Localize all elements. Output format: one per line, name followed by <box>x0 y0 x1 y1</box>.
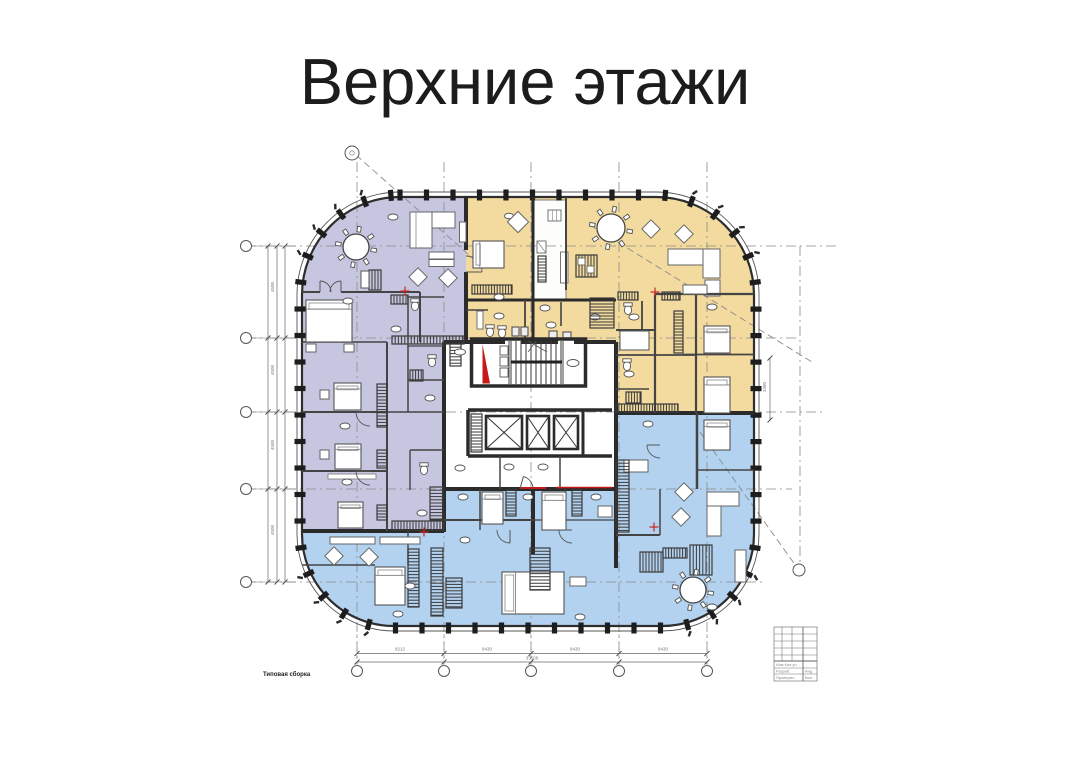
svg-text:Анд: Анд <box>805 669 813 674</box>
svg-text:8430: 8430 <box>658 647 669 652</box>
svg-text:Проверил: Проверил <box>776 675 795 680</box>
svg-text:3380: 3380 <box>762 381 767 392</box>
svg-text:Вол: Вол <box>805 675 813 680</box>
svg-text:4500: 4500 <box>270 364 275 375</box>
svg-text:4500: 4500 <box>270 281 275 292</box>
svg-text:Типовая сборка: Типовая сборка <box>263 671 311 678</box>
svg-text:4500: 4500 <box>270 439 275 450</box>
svg-text:33506: 33506 <box>526 656 539 661</box>
svg-text:8212: 8212 <box>395 647 406 652</box>
svg-text:Изм Кол.уч: Изм Кол.уч <box>776 662 797 667</box>
svg-text:8430: 8430 <box>482 647 493 652</box>
svg-text:Разраб.: Разраб. <box>776 669 790 674</box>
svg-text:Верхние этажи: Верхние этажи <box>300 45 751 118</box>
svg-text:8430: 8430 <box>570 647 581 652</box>
svg-text:4500: 4500 <box>270 524 275 535</box>
